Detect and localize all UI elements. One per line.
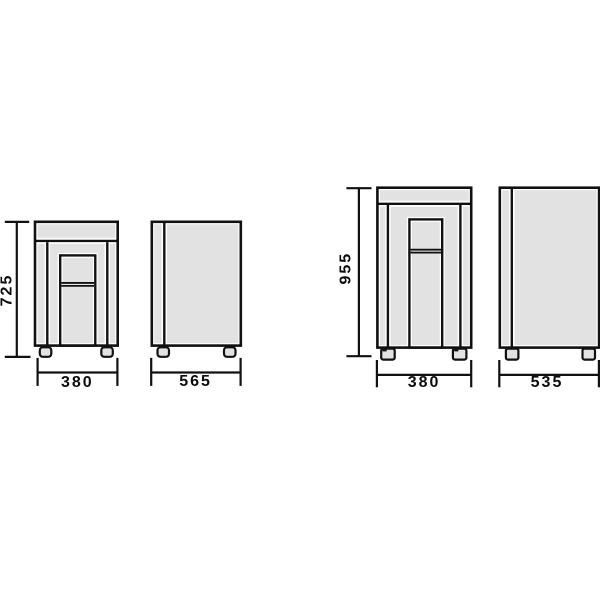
- svg-text:535: 535: [531, 374, 564, 391]
- svg-text:380: 380: [408, 374, 441, 391]
- svg-text:955: 955: [338, 252, 355, 285]
- svg-text:380: 380: [61, 374, 94, 391]
- svg-text:565: 565: [179, 373, 212, 390]
- svg-text:725: 725: [0, 274, 16, 307]
